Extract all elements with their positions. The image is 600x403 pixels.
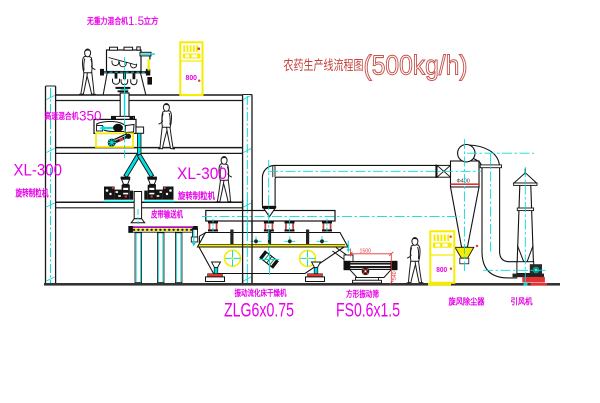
svg-text:农药生产线流程图: 农药生产线流程图 [284,58,364,73]
svg-text:ZLG6x0.75: ZLG6x0.75 [224,301,294,322]
svg-text:XL-300: XL-300 [177,164,227,183]
svg-text:1500: 1500 [360,248,372,254]
svg-text:800: 800 [436,265,447,274]
svg-text:旋风除尘器: 旋风除尘器 [448,296,485,307]
svg-text:540: 540 [392,271,398,280]
svg-text:FS0.6x1.5: FS0.6x1.5 [336,301,400,322]
svg-text:皮带输送机: 皮带输送机 [150,209,183,220]
svg-text:(500kg/h): (500kg/h) [364,50,468,81]
svg-text:无重力混合机: 无重力混合机 [86,15,128,26]
svg-text:引风机: 引风机 [511,296,533,307]
svg-text:800: 800 [186,73,198,82]
svg-text:旋转制粒机: 旋转制粒机 [177,190,215,201]
svg-text:XL-300: XL-300 [14,162,63,180]
svg-text:350: 350 [79,109,102,124]
svg-text:振动流化床干燥机: 振动流化床干燥机 [235,287,287,298]
svg-text:旋转制粒机: 旋转制粒机 [15,188,49,200]
svg-text:Φ400: Φ400 [457,178,470,184]
svg-text:方形振动筛: 方形振动筛 [346,288,379,299]
svg-text:立方: 立方 [144,15,159,26]
svg-text:1.5: 1.5 [128,16,144,28]
svg-text:高速混合机: 高速混合机 [45,110,79,121]
